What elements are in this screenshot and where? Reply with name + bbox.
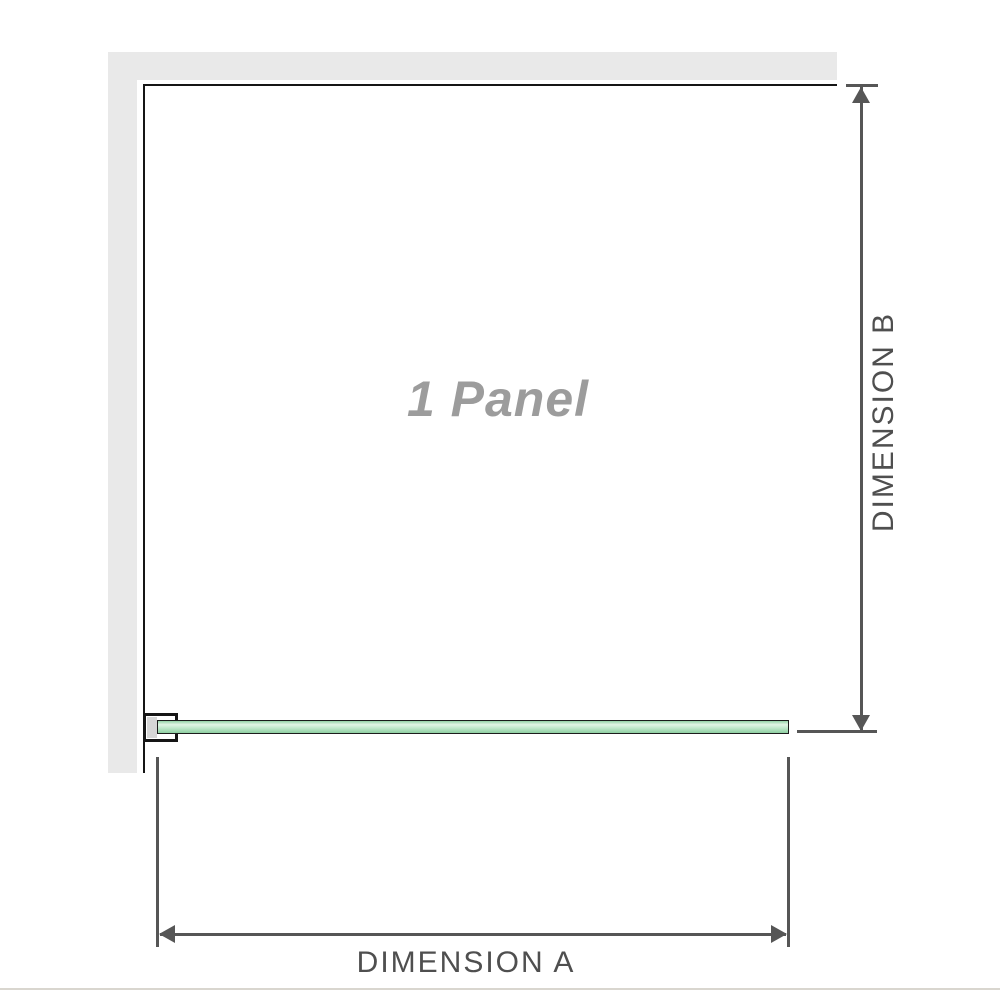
panel-count-label: 1 Panel [407, 370, 589, 428]
panel-dimension-diagram: 1 Panel DIMENSION B DIMENSION A [0, 0, 1000, 1000]
dimension-b-label: DIMENSION B [867, 312, 901, 532]
dimension-a-label: DIMENSION A [357, 946, 576, 980]
panel-outline-left-edge [143, 84, 145, 773]
dimension-a-left-tick [156, 757, 159, 947]
arrowhead-down-icon [852, 715, 870, 731]
arrowhead-left-icon [159, 925, 175, 943]
arrowhead-up-icon [852, 87, 870, 103]
arrowhead-right-icon [771, 925, 787, 943]
panel-outline-top-edge [143, 84, 837, 86]
bracket-anchor-block [147, 717, 157, 738]
glass-panel-bar [157, 720, 789, 734]
dimension-a-line [160, 933, 786, 936]
dimension-a-right-tick [787, 757, 790, 947]
wall-top-bar [108, 52, 837, 80]
bottom-divider-line [0, 988, 1000, 990]
dimension-b-line [860, 87, 863, 731]
wall-left-bar [108, 52, 137, 773]
